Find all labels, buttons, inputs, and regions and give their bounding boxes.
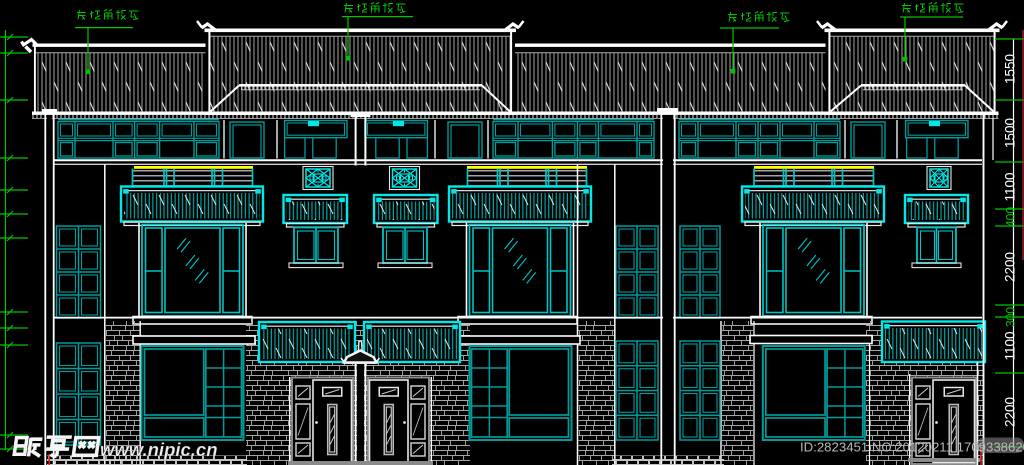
svg-text:2200: 2200 [1003,397,1018,427]
svg-text:400: 400 [1004,207,1018,227]
svg-text:2200: 2200 [1003,252,1018,282]
svg-text:1550: 1550 [1003,54,1018,84]
svg-text:ID:2823451 NO:20120211 1709338: ID:2823451 NO:20120211 170933862000 [800,440,1024,455]
svg-text:1500: 1500 [1003,118,1018,148]
svg-text:1100: 1100 [1003,331,1018,360]
svg-text:1100: 1100 [1003,172,1018,201]
svg-text:300: 300 [1004,307,1018,327]
svg-text:www.nipic.cn: www.nipic.cn [100,439,218,460]
